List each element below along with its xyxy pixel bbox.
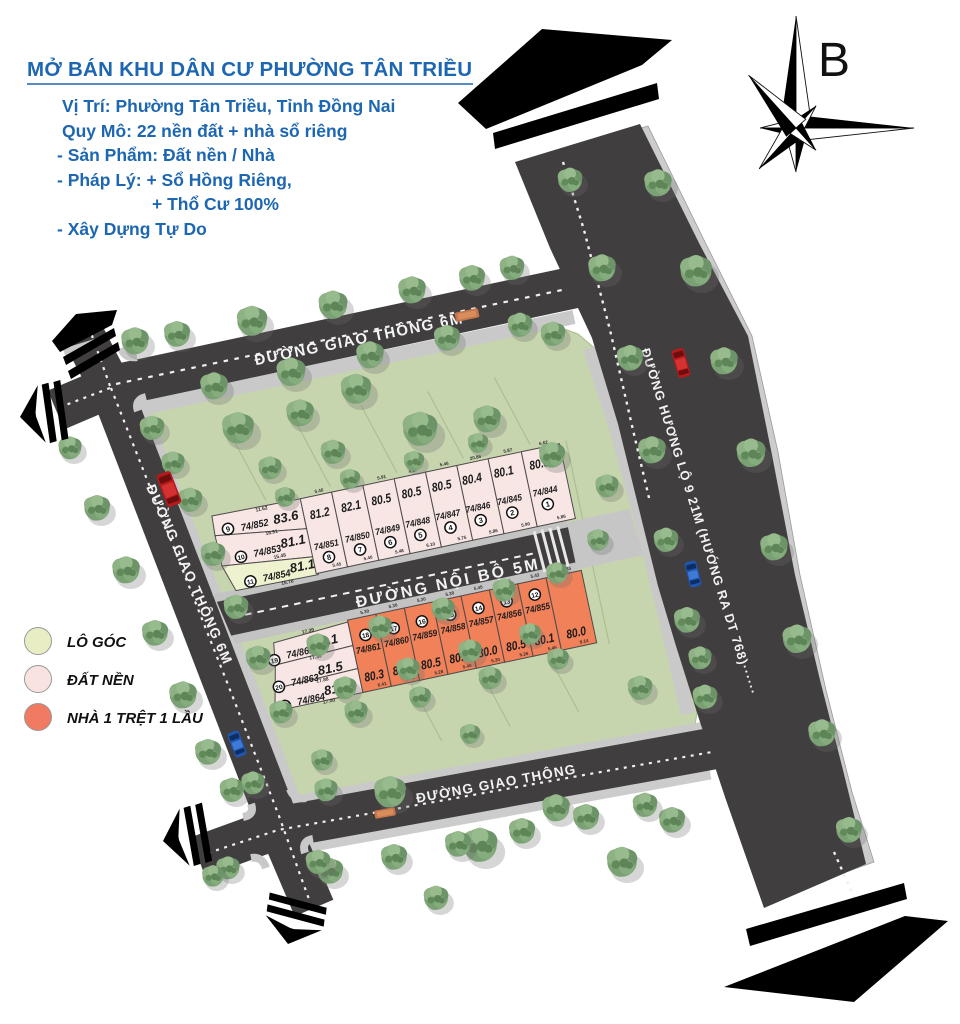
svg-text:MỞ BÁN KHU DÂN CƯ PHƯỜNG TÂN: MỞ BÁN KHU DÂN CƯ PHƯỜNG TÂN TRIỀU [27, 57, 472, 81]
svg-text:LÔ GÓC: LÔ GÓC [67, 633, 127, 651]
svg-text:Vị Trí: Phường Tân Triều, Tỉnh: Vị Trí: Phường Tân Triều, Tỉnh Đồng Nai [62, 96, 395, 116]
svg-text:ĐẤT NỀN: ĐẤT NỀN [67, 671, 135, 689]
svg-text:- Sản Phẩm: Đất nền / Nhà: - Sản Phẩm: Đất nền / Nhà [57, 145, 275, 165]
svg-text:NHÀ 1 TRỆT 1 LẦU: NHÀ 1 TRỆT 1 LẦU [67, 709, 204, 727]
svg-text:- Xây Dựng Tự Do: - Xây Dựng Tự Do [57, 219, 207, 239]
svg-text:B: B [818, 34, 850, 87]
svg-text:+ Thổ Cư 100%: + Thổ Cư 100% [152, 194, 279, 214]
svg-text:- Pháp Lý: + Sổ Hồng Riêng,: - Pháp Lý: + Sổ Hồng Riêng, [57, 170, 292, 190]
svg-text:Quy Mô: 22 nền đất + nhà sổ ri: Quy Mô: 22 nền đất + nhà sổ riêng [62, 121, 347, 141]
